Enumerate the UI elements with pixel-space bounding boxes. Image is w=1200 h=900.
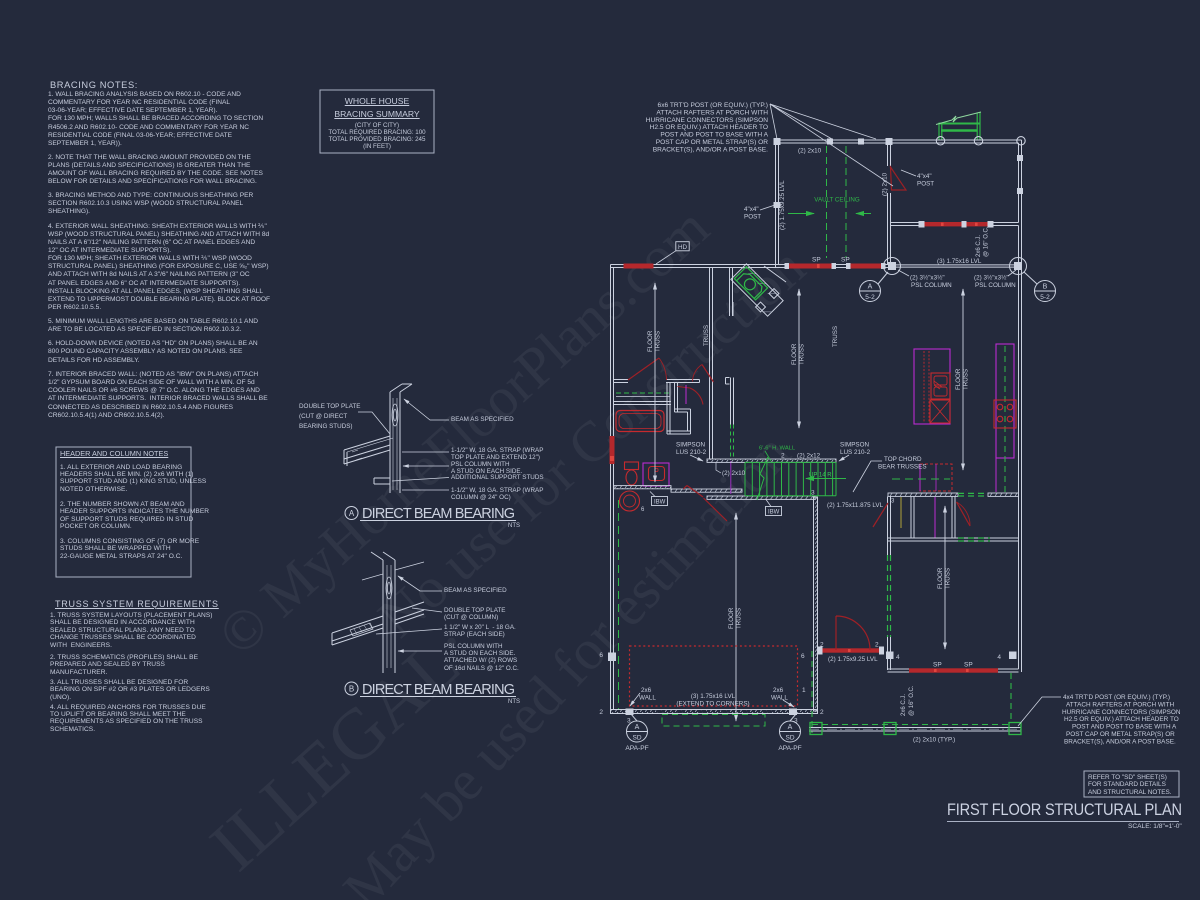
svg-text:APA-PF: APA-PF	[625, 745, 648, 752]
svg-text:SIMPSON: SIMPSON	[676, 442, 705, 449]
svg-text:(3) 1.75x16 LVL: (3) 1.75x16 LVL	[691, 693, 736, 700]
svg-text:TRUSS: TRUSS	[945, 568, 952, 589]
svg-text:2x6: 2x6	[641, 687, 652, 694]
svg-text:LUS 210-2: LUS 210-2	[676, 449, 707, 456]
svg-text:A: A	[868, 284, 873, 291]
svg-text:FLOOR: FLOOR	[955, 368, 962, 390]
svg-text:2: 2	[875, 642, 879, 649]
svg-text:@ 16" O.C.: @ 16" O.C.	[909, 685, 915, 716]
svg-text:4: 4	[896, 654, 900, 661]
svg-text:(2) 1.75x9.25 LVL: (2) 1.75x9.25 LVL	[779, 180, 786, 230]
svg-text:FLOOR: FLOOR	[937, 567, 944, 589]
svg-text:(2) 3½"x3½": (2) 3½"x3½"	[910, 274, 945, 282]
svg-text:2: 2	[820, 709, 824, 716]
svg-text:4"x4": 4"x4"	[917, 173, 932, 180]
svg-text:(EXTEND TO CORNERS): (EXTEND TO CORNERS)	[676, 701, 749, 708]
svg-text:BRACKET(S), AND/OR A POST BASE: BRACKET(S), AND/OR A POST BASE.	[1064, 738, 1176, 745]
svg-text:H2.5 OR EQUIV.) ATTACH HEADER: H2.5 OR EQUIV.) ATTACH HEADER TO	[650, 124, 768, 131]
svg-text:2x6: 2x6	[773, 687, 784, 694]
svg-text:5-2: 5-2	[1040, 294, 1050, 301]
svg-text:(2) 2x12: (2) 2x12	[797, 453, 821, 460]
svg-text:IBW: IBW	[654, 500, 666, 506]
svg-text:6: 6	[599, 652, 603, 659]
svg-text:VAULT CEILING: VAULT CEILING	[814, 197, 860, 204]
svg-text:IBW: IBW	[768, 510, 780, 516]
svg-text:A: A	[635, 724, 640, 731]
svg-text:TRUSS: TRUSS	[832, 326, 839, 347]
svg-text:@ 16" O.C.: @ 16" O.C.	[984, 226, 990, 257]
svg-text:FLOOR: FLOOR	[791, 343, 798, 365]
svg-text:POST AND POST TO BASE WITH A: POST AND POST TO BASE WITH A	[1072, 724, 1177, 731]
svg-text:FLOOR: FLOOR	[647, 330, 654, 352]
svg-text:TRUSS: TRUSS	[703, 325, 710, 346]
svg-text:SD: SD	[785, 735, 794, 742]
svg-text:B: B	[1043, 284, 1048, 291]
svg-text:SP: SP	[812, 257, 821, 264]
svg-text:2x6 C.J.: 2x6 C.J.	[901, 694, 907, 716]
svg-text:5-2: 5-2	[865, 294, 875, 301]
svg-text:WALL: WALL	[639, 695, 656, 702]
svg-text:POST: POST	[917, 181, 934, 188]
svg-text:FLOOR: FLOOR	[728, 607, 735, 629]
svg-text:TRUSS: TRUSS	[736, 608, 743, 629]
svg-text:2: 2	[820, 642, 824, 649]
svg-text:SP: SP	[933, 662, 942, 669]
svg-text:6: 6	[641, 507, 645, 513]
svg-text:4: 4	[997, 654, 1001, 661]
svg-text:APA-PF: APA-PF	[778, 745, 801, 752]
svg-text:6: 6	[801, 653, 805, 660]
svg-text:WALL: WALL	[771, 695, 788, 702]
svg-text:3: 3	[811, 490, 815, 497]
svg-text:6'-6" H. WALL: 6'-6" H. WALL	[759, 446, 796, 452]
svg-text:ATTACH RAFTERS AT PORCH WITH: ATTACH RAFTERS AT PORCH WITH	[1066, 701, 1175, 708]
svg-text:3: 3	[891, 499, 895, 505]
svg-text:4"x4": 4"x4"	[744, 206, 759, 213]
svg-text:2: 2	[781, 453, 785, 460]
svg-text:4x4 TRT'D POST (OR EQUIV.) (TY: 4x4 TRT'D POST (OR EQUIV.) (TYP.)	[1063, 694, 1170, 701]
svg-text:6x6 TRT'D POST (OR EQUIV.) (TY: 6x6 TRT'D POST (OR EQUIV.) (TYP.)	[658, 102, 768, 109]
svg-text:(2) 1.75x11.875 LVL: (2) 1.75x11.875 LVL	[827, 502, 884, 509]
svg-text:TRUSS: TRUSS	[963, 369, 970, 390]
svg-text:SD: SD	[632, 735, 641, 742]
svg-text:HURRICANE CONNECTORS (SIMPSON: HURRICANE CONNECTORS (SIMPSON	[1062, 709, 1181, 716]
svg-text:ATTACH RAFTERS AT PORCH WITH: ATTACH RAFTERS AT PORCH WITH	[656, 109, 768, 116]
svg-text:POST AND POST TO BASE WITH A: POST AND POST TO BASE WITH A	[660, 132, 768, 139]
svg-text:SP: SP	[841, 257, 850, 264]
svg-text:(2) 2x10: (2) 2x10	[722, 470, 746, 477]
svg-text:H2.5 OR EQUIV.) ATTACH HEADER: H2.5 OR EQUIV.) ATTACH HEADER TO	[1064, 716, 1179, 723]
svg-text:A: A	[788, 724, 793, 731]
svg-text:2x6 C.J.: 2x6 C.J.	[976, 235, 982, 257]
svg-text:TOP CHORD: TOP CHORD	[884, 456, 922, 463]
svg-text:BRACKET(S), AND/OR A POST BASE: BRACKET(S), AND/OR A POST BASE.	[653, 146, 768, 153]
svg-text:HURRICANE CONNECTORS (SIMPSON: HURRICANE CONNECTORS (SIMPSON	[646, 117, 768, 124]
svg-text:PSL COLUMN: PSL COLUMN	[911, 282, 952, 289]
svg-text:POST: POST	[744, 214, 761, 221]
svg-text:(2) 2x10 (TYP.): (2) 2x10 (TYP.)	[913, 737, 955, 744]
svg-text:LUS 210-2: LUS 210-2	[840, 449, 871, 456]
svg-text:SIMPSON: SIMPSON	[840, 442, 869, 449]
svg-text:(2) 2x10: (2) 2x10	[798, 148, 822, 155]
svg-text:2: 2	[599, 709, 603, 716]
svg-text:TRUSS: TRUSS	[799, 344, 806, 365]
svg-text:TRUSS: TRUSS	[655, 331, 662, 352]
svg-text:POST CAP OR METAL STRAP(S) OR: POST CAP OR METAL STRAP(S) OR	[656, 139, 768, 146]
svg-text:(2) 2x10: (2) 2x10	[882, 172, 889, 196]
svg-text:POST CAP OR METAL STRAP(S) OR: POST CAP OR METAL STRAP(S) OR	[1066, 731, 1175, 738]
svg-text:(3) 1.75x16 LVL: (3) 1.75x16 LVL	[937, 258, 982, 265]
svg-text:PSL COLUMN: PSL COLUMN	[975, 282, 1016, 289]
svg-text:(2) 3½"x3½": (2) 3½"x3½"	[974, 274, 1009, 282]
svg-text:1: 1	[802, 687, 806, 694]
svg-text:(2) 1.75x9.25 LVL: (2) 1.75x9.25 LVL	[828, 656, 878, 663]
svg-text:UP 14 R: UP 14 R	[809, 473, 832, 479]
svg-text:BEAR TRUSSES: BEAR TRUSSES	[878, 464, 927, 471]
svg-text:SP: SP	[964, 662, 973, 669]
svg-text:HD: HD	[678, 244, 688, 251]
